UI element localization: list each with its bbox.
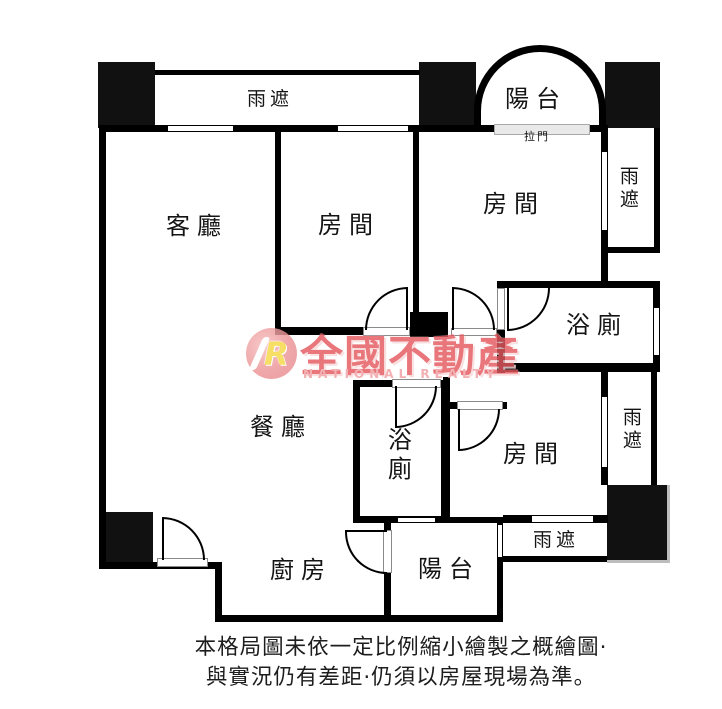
disclaimer-line-1: 本格局圖未依一定比例縮小繪製之概繪圖· <box>81 633 721 663</box>
pillar-left-mid <box>100 512 153 562</box>
label-sliding-door: 拉門 <box>524 131 550 143</box>
wall-bottom-main <box>215 615 503 622</box>
realty-watermark: R 全國不動產 NATIONAL REALTY <box>243 326 488 384</box>
window-bath-upper-right <box>653 308 660 355</box>
label-bedroom-top-right: 房間 <box>483 191 545 217</box>
label-kitchen: 廚房 <box>270 557 332 583</box>
watermark-brand-sub: NATIONAL REALTY <box>303 367 500 381</box>
label-bedroom-bottom-right: 房間 <box>503 441 565 467</box>
pillar-top-left <box>98 62 155 128</box>
window-bedroom-tr-right <box>601 152 608 230</box>
window-bedroom-br-bottom <box>532 515 593 523</box>
label-balcony-top: 陽台 <box>505 86 567 112</box>
window-bedroom-br-right <box>601 397 608 467</box>
wall-left-outer <box>99 125 106 569</box>
label-dining: 餐廳 <box>250 414 312 440</box>
label-living-room: 客廳 <box>166 213 228 239</box>
bath-upper-bottom <box>505 363 660 372</box>
window-living-top <box>168 125 233 132</box>
label-canopy-right-upper: 雨遮 <box>617 166 638 212</box>
bedroom-br-left <box>443 377 450 523</box>
label-canopy-top: 雨遮 <box>247 89 293 110</box>
window-balcony-b-top <box>398 517 435 523</box>
canopy-top-edge <box>155 70 420 75</box>
door-leaf <box>395 386 397 428</box>
door-leaf <box>345 530 387 532</box>
entrance-door-leaf <box>162 517 164 560</box>
door-arc <box>458 409 500 451</box>
door-arc <box>345 532 387 574</box>
window-bedroom-mid-top <box>338 125 408 132</box>
canopy-ru-right <box>654 128 660 252</box>
label-bath-lower: 浴廁 <box>384 427 410 485</box>
canopy-ru-bottom <box>601 247 660 253</box>
watermark-logo-circle: R <box>246 328 297 379</box>
logo-letter: R <box>264 335 289 373</box>
pillar-bottom-right <box>607 485 670 563</box>
pillar-top-mid <box>419 62 476 128</box>
floor-plan: 客廳 房間 房間 房間 浴廁 浴廁 餐廳 廚房 陽台 陽台 雨遮 雨遮 雨遮 雨… <box>0 0 722 709</box>
kitchen-step-v <box>215 562 222 622</box>
label-balcony-bottom: 陽台 <box>418 556 480 582</box>
bath-upper-top <box>497 281 660 288</box>
label-bath-upper: 浴廁 <box>566 312 628 338</box>
label-bedroom-mid: 房間 <box>318 212 380 238</box>
canopy-bottom-edge <box>503 556 607 562</box>
window-balcony-b-right <box>497 525 503 557</box>
door-arc <box>395 386 437 428</box>
entrance-door-arc <box>162 517 205 560</box>
door-leaf <box>458 409 460 451</box>
label-canopy-bottom: 雨遮 <box>533 530 579 551</box>
disclaimer-line-2: 與實況仍有差距·仍須以房屋現場為準。 <box>81 663 721 693</box>
canopy-rl-right <box>651 372 657 485</box>
bath-lower-left <box>353 380 360 523</box>
wall-bedroom-mid-right <box>413 125 419 315</box>
pillar-top-right <box>605 62 660 128</box>
wall-living-bedroom <box>275 125 281 332</box>
disclaimer-text: 本格局圖未依一定比例縮小繪製之概繪圖· 與實況仍有差距·仍須以房屋現場為準。 <box>81 633 721 692</box>
label-canopy-right-lower: 雨遮 <box>620 407 641 453</box>
